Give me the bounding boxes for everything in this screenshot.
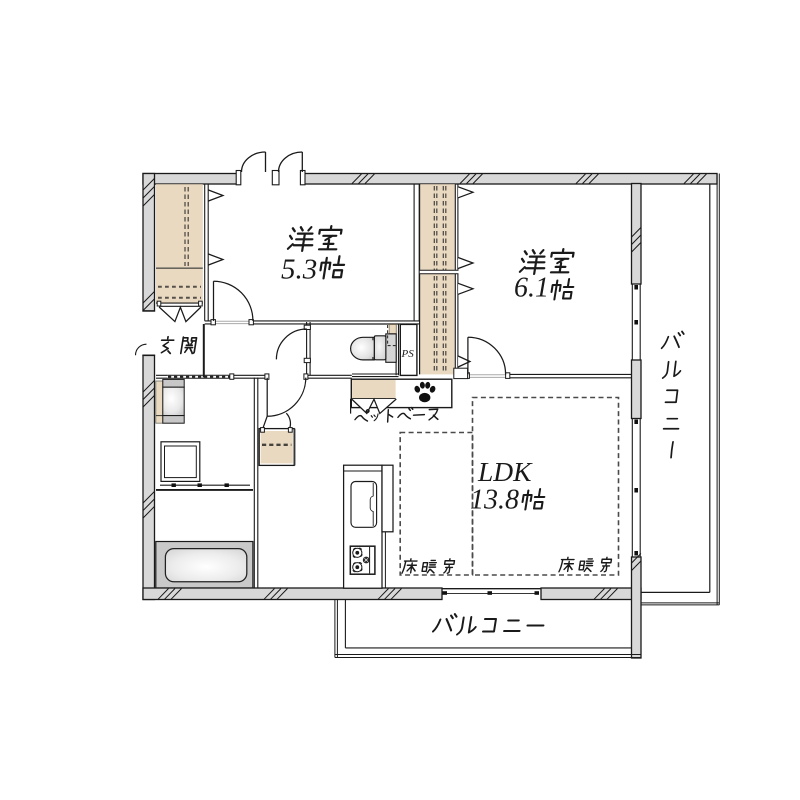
svg-text:5.3: 5.3 (281, 254, 317, 286)
svg-text:LDK: LDK (477, 456, 533, 487)
svg-text:6.1: 6.1 (514, 273, 549, 304)
svg-text:13.8: 13.8 (470, 485, 519, 516)
svg-text:PS: PS (401, 348, 415, 360)
